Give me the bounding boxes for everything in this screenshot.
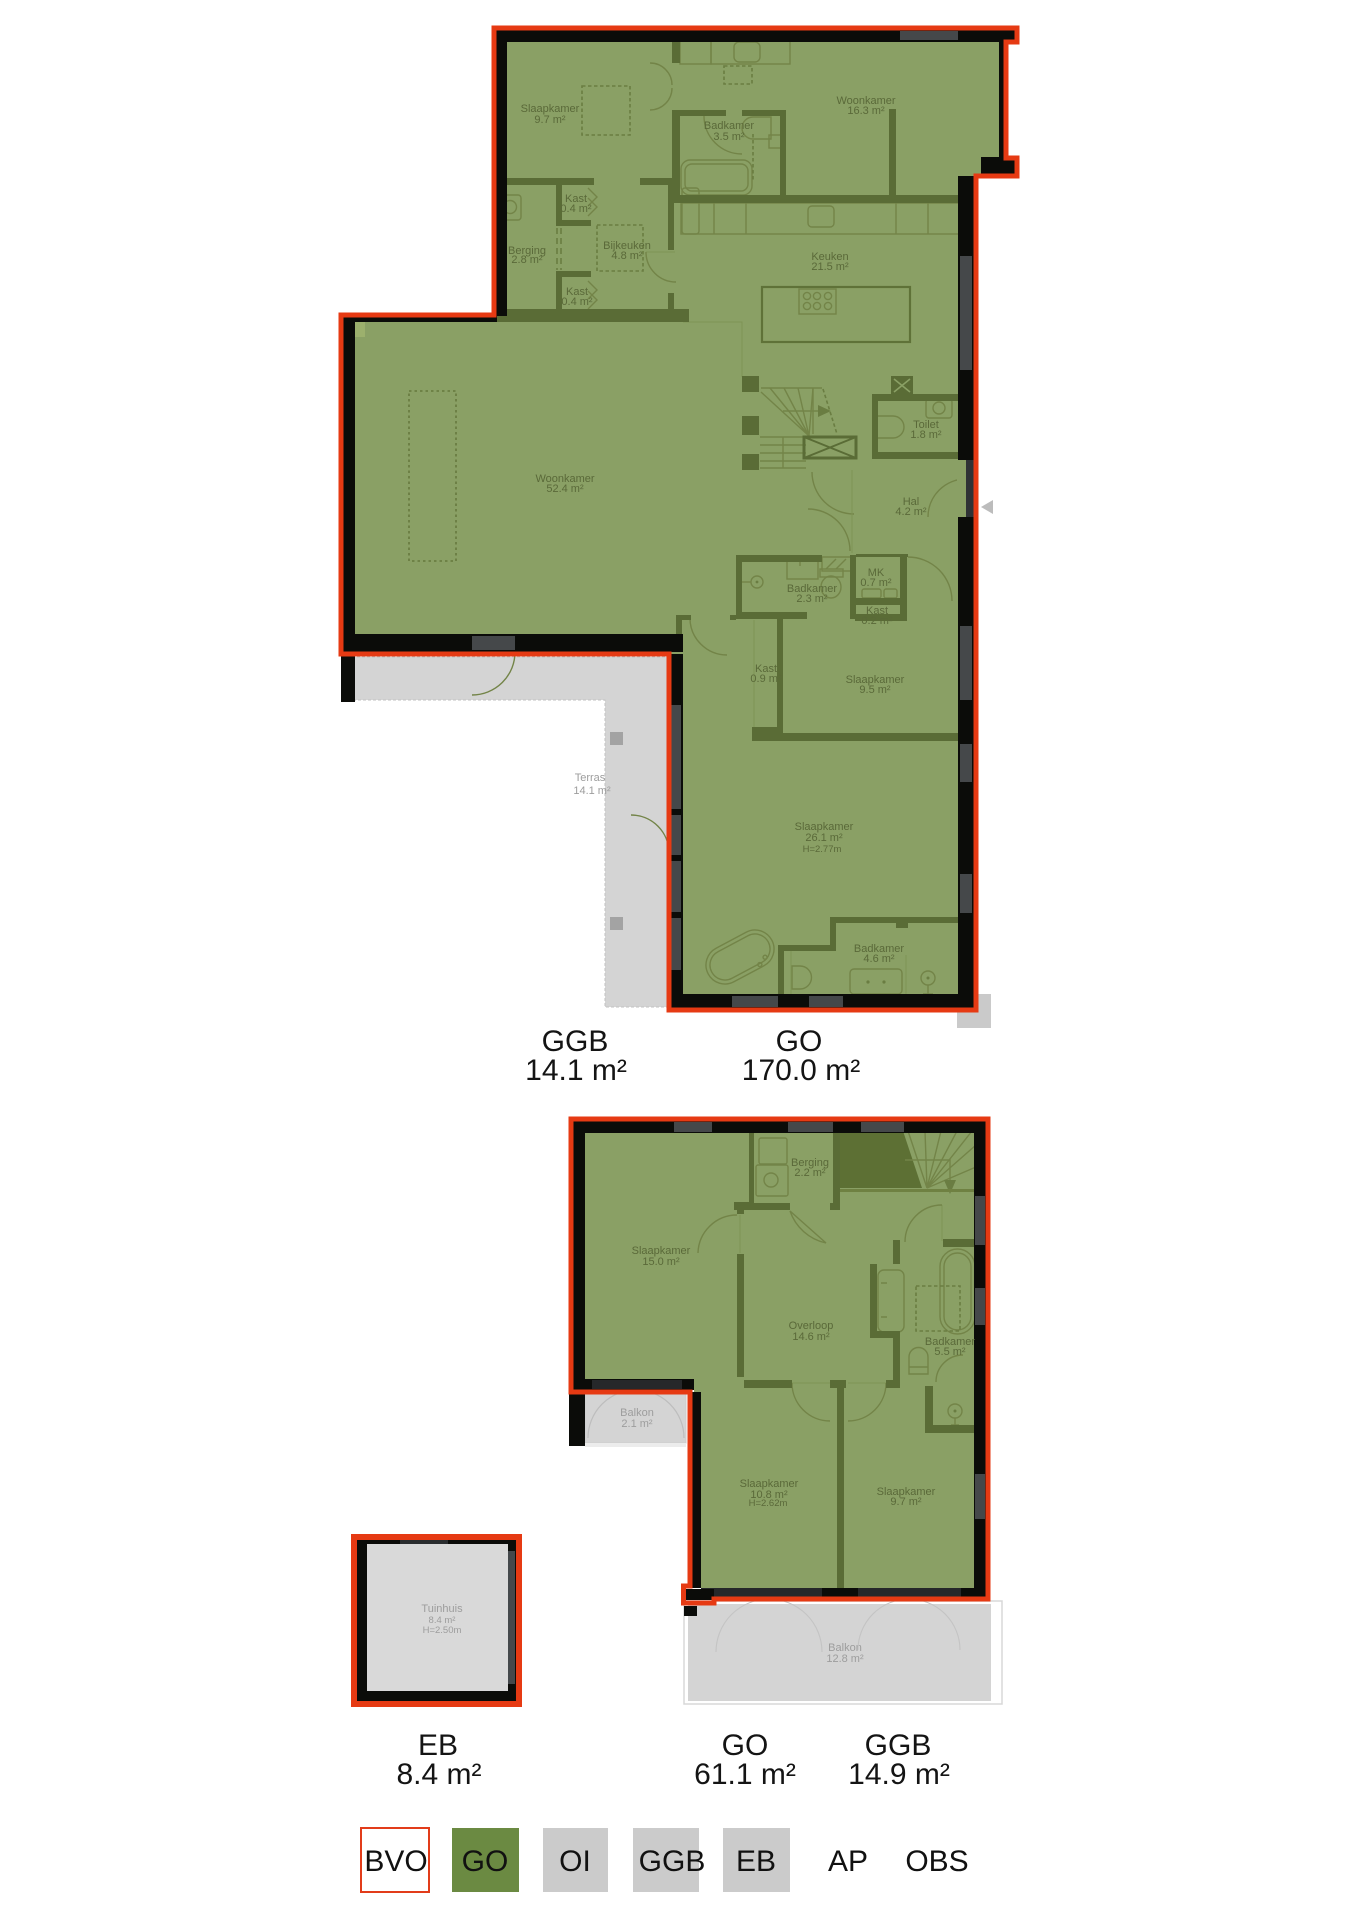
- svg-text:AP: AP: [828, 1845, 868, 1878]
- svg-text:9.5 m²: 9.5 m²: [859, 684, 891, 696]
- svg-text:12.8 m²: 12.8 m²: [826, 1653, 864, 1665]
- svg-text:H=2.50m: H=2.50m: [423, 1625, 462, 1636]
- svg-text:0.7 m²: 0.7 m²: [860, 577, 892, 589]
- svg-text:14.1 m²: 14.1 m²: [525, 1054, 627, 1087]
- svg-text:2.8 m²: 2.8 m²: [511, 254, 543, 266]
- svg-text:4.2 m²: 4.2 m²: [895, 506, 927, 518]
- svg-text:0.9 m²: 0.9 m²: [750, 673, 782, 685]
- svg-text:2.2 m²: 2.2 m²: [794, 1167, 826, 1179]
- svg-text:14.9 m²: 14.9 m²: [848, 1758, 950, 1791]
- svg-text:H=2.62m: H=2.62m: [749, 1498, 788, 1509]
- svg-text:OI: OI: [559, 1845, 591, 1878]
- svg-text:Terras: Terras: [575, 772, 606, 784]
- svg-text:4.6 m²: 4.6 m²: [863, 953, 895, 965]
- svg-text:4.8 m²: 4.8 m²: [611, 250, 643, 262]
- svg-text:15.0 m²: 15.0 m²: [642, 1256, 680, 1268]
- svg-text:3.5 m²: 3.5 m²: [713, 131, 745, 143]
- svg-text:16.3 m²: 16.3 m²: [847, 105, 885, 117]
- svg-text:61.1 m²: 61.1 m²: [694, 1758, 796, 1791]
- svg-text:0.4 m²: 0.4 m²: [561, 296, 593, 308]
- svg-text:H=2.77m: H=2.77m: [803, 844, 842, 855]
- svg-text:26.1 m²: 26.1 m²: [805, 832, 843, 844]
- svg-text:8.4 m²: 8.4 m²: [396, 1758, 481, 1791]
- svg-text:5.5 m²: 5.5 m²: [934, 1346, 966, 1358]
- svg-text:1.8 m²: 1.8 m²: [910, 429, 942, 441]
- svg-text:EB: EB: [736, 1845, 776, 1878]
- svg-text:0.4 m²: 0.4 m²: [560, 203, 592, 215]
- svg-text:Tuinhuis: Tuinhuis: [421, 1603, 463, 1615]
- svg-text:OBS: OBS: [905, 1845, 968, 1878]
- svg-text:170.0 m²: 170.0 m²: [742, 1054, 860, 1087]
- svg-text:0.2 m²: 0.2 m²: [861, 615, 893, 627]
- svg-text:52.4 m²: 52.4 m²: [546, 483, 584, 495]
- svg-text:2.1 m²: 2.1 m²: [621, 1418, 653, 1430]
- svg-text:14.6 m²: 14.6 m²: [792, 1331, 830, 1343]
- svg-text:GO: GO: [462, 1845, 509, 1878]
- svg-text:21.5 m²: 21.5 m²: [811, 261, 849, 273]
- svg-text:9.7 m²: 9.7 m²: [534, 114, 566, 126]
- svg-text:2.3 m²: 2.3 m²: [796, 593, 828, 605]
- svg-text:BVO: BVO: [364, 1845, 427, 1878]
- svg-text:14.1 m²: 14.1 m²: [573, 785, 611, 797]
- svg-text:9.7 m²: 9.7 m²: [890, 1496, 922, 1508]
- svg-text:GGB: GGB: [639, 1845, 706, 1878]
